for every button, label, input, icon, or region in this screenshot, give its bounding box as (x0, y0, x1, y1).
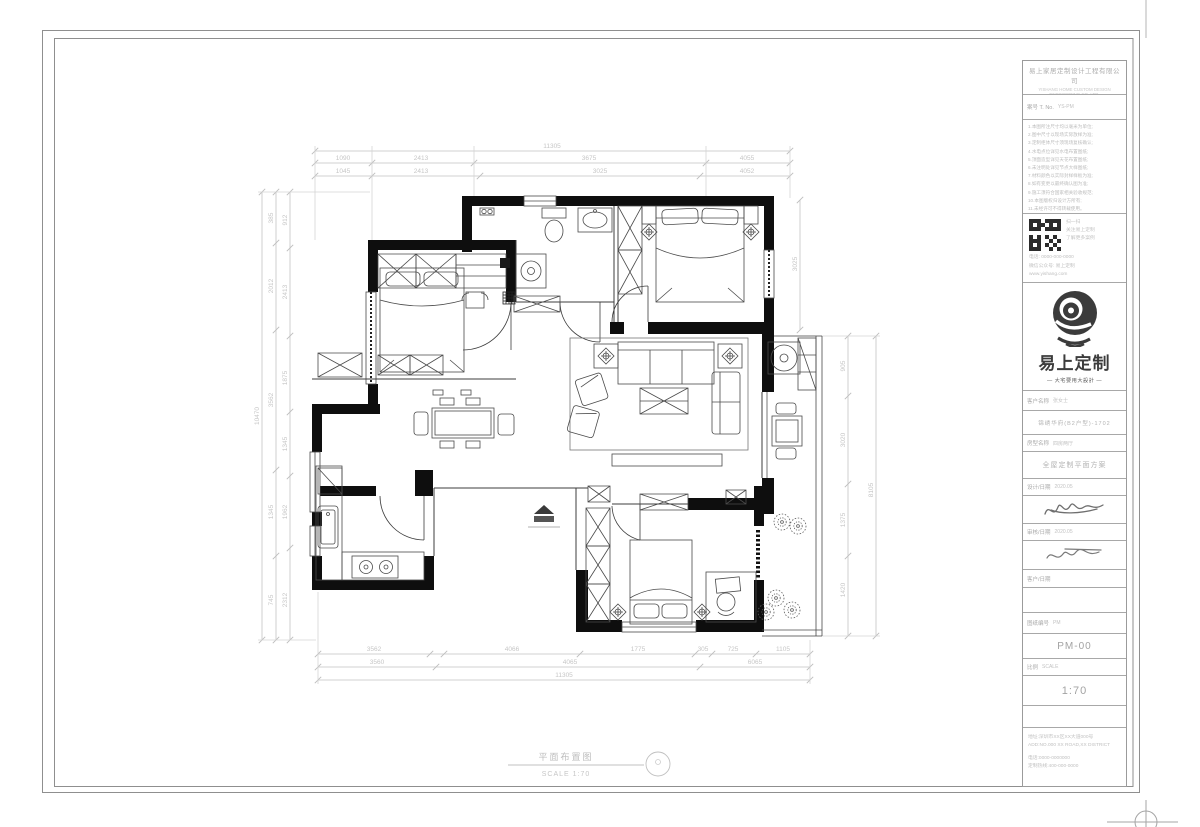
note-line: 11.未经许可不得转载使用。 (1028, 205, 1121, 213)
dim-label: 11305 (543, 143, 561, 150)
type-row: 房型名称 四房两厅 (1023, 435, 1126, 452)
furniture-layer (316, 206, 816, 624)
drawing-name-row: 全屋定制平面方案 (1023, 452, 1126, 479)
dim-label: 912 (282, 214, 289, 225)
title-block: 易上家居定制设计工程有限公司 YISHANG HOME CUSTOM DESIG… (1022, 60, 1127, 787)
dim-label: 8105 (868, 482, 875, 497)
dimension-lines (258, 146, 880, 684)
sheet-frame (43, 0, 1179, 827)
footer-phone: 电话:0000-0000000 (1028, 755, 1121, 763)
drawing-sheet: 11305 1090 2413 3675 4055 1045 2413 3025… (0, 0, 1200, 827)
scale-value: 1:70 (1062, 685, 1087, 697)
dim-label: 2413 (282, 284, 289, 299)
dim-label: 4052 (740, 168, 755, 175)
designer-label: 设计/日期 (1027, 483, 1051, 491)
drawing-title: 平面布置图 (538, 751, 593, 762)
auditor-label: 审核/日期 (1027, 528, 1051, 536)
dim-label: 305 (698, 646, 709, 653)
brand-logo-name: 易上定制 (1039, 349, 1111, 374)
drawing-title-block: 平面布置图 SCALE 1:70 (508, 751, 670, 778)
brand-logo-icon (1042, 289, 1108, 347)
drawing-name: 全屋定制平面方案 (1043, 460, 1107, 470)
footer-address-en: ADD:NO.000 XX ROAD,XX DISTRICT (1028, 742, 1121, 750)
note-line: 1.本图所注尺寸均以毫米为单位; (1028, 123, 1121, 131)
qr-caption-line: 了解更多案例 (1066, 235, 1095, 243)
dim-label: 3562 (367, 646, 382, 653)
dim-label: 1345 (282, 436, 289, 451)
drawing-no-value: PM-00 (1057, 641, 1091, 652)
dim-label: 2012 (268, 278, 275, 293)
qr-contact-line: www.yishang.com (1029, 271, 1120, 280)
case-number-row: 案号 T. No. YS-PM (1023, 95, 1126, 120)
dim-label: 1875 (282, 370, 289, 385)
dim-label: 745 (268, 594, 275, 605)
floor-plan-svg: 11305 1090 2413 3675 4055 1045 2413 3025… (0, 0, 1200, 827)
dim-label: 1775 (631, 646, 646, 653)
dim-label: 385 (268, 212, 275, 223)
case-number-label: 案号 T. No. (1027, 103, 1054, 111)
qr-section: 扫一扫 关注易上定制 了解更多案例 电话: 0000-000-0000 微信公众… (1023, 214, 1126, 283)
project-name-row: 锦绣华府(B2户型)-1702 (1023, 411, 1126, 435)
dim-label: 725 (728, 646, 739, 653)
company-footer: 地址:深圳市XX区XX大道000号 ADD:NO.000 XX ROAD,XX … (1023, 728, 1126, 788)
dim-label: 1105 (776, 646, 790, 653)
note-line: 2.图中尺寸以现场实际放样为准; (1028, 131, 1121, 139)
qr-caption-line: 扫一扫 (1066, 219, 1095, 227)
note-line: 8.如有变更以最终确认图为准; (1028, 180, 1121, 188)
client-value: 张女士 (1053, 397, 1068, 404)
type-value: 四房两厅 (1053, 440, 1073, 447)
qr-caption-line: 关注易上定制 (1066, 227, 1095, 235)
note-line: 3.定制柜体尺寸须现场复核确认; (1028, 139, 1121, 147)
dim-label: 3020 (840, 432, 847, 447)
entry-arrow (528, 505, 560, 527)
designer-signature-row (1023, 496, 1126, 524)
designer-row: 设计/日期 2020.05 (1023, 479, 1126, 496)
dim-label: 2413 (414, 168, 429, 175)
dim-label: 4065 (563, 659, 578, 666)
dim-label: 3025 (593, 168, 608, 175)
spacer-row-2 (1023, 706, 1126, 728)
dim-label: 11305 (555, 672, 573, 679)
footer-address: 地址:深圳市XX区XX大道000号 (1028, 734, 1121, 742)
scale-value-row: 1:70 (1023, 676, 1126, 706)
dim-label: 10470 (254, 407, 261, 425)
qr-code (1029, 219, 1061, 251)
company-name: 易上家居定制设计工程有限公司 (1027, 65, 1122, 85)
note-line: 7.材料颜色以实际封样样板为准; (1028, 172, 1121, 180)
dim-label: 6065 (748, 659, 763, 666)
type-label: 房型名称 (1027, 439, 1049, 447)
spacer-row (1023, 588, 1126, 613)
dim-label: 1345 (268, 504, 275, 519)
dim-label: 1962 (282, 504, 289, 519)
note-line: 6.未注明处详见节点大样图纸; (1028, 164, 1121, 172)
dim-label: 2312 (282, 592, 289, 607)
dim-label: 905 (840, 360, 847, 371)
case-number-value: YS-PM (1058, 104, 1074, 110)
note-line: 10.本图版权归设计方所有; (1028, 197, 1121, 205)
drawing-no-hint: PM (1053, 620, 1061, 626)
scale-label: 比例 (1027, 663, 1038, 671)
auditor-date: 2020.05 (1055, 529, 1073, 535)
dim-label: 3675 (582, 155, 597, 162)
company-name-en: YISHANG HOME CUSTOM DESIGN ENGINEERING C… (1027, 87, 1122, 95)
confirm-row: 客户/日期 (1023, 570, 1126, 588)
note-line: 5.顶面造型详见天花布置图纸; (1028, 156, 1121, 164)
dim-label: 3560 (370, 659, 385, 666)
designer-date: 2020.05 (1055, 484, 1073, 490)
dim-label: 4066 (505, 646, 520, 653)
scale-hint: SCALE (1042, 664, 1058, 670)
dim-label: 1090 (336, 155, 351, 162)
note-line: 4.水电点位详见水电布置图纸; (1028, 148, 1121, 156)
footer-hotline: 定制热线:400-000-0000 (1028, 763, 1121, 771)
qr-caption: 扫一扫 关注易上定制 了解更多案例 (1066, 219, 1095, 251)
dim-label: 4055 (740, 155, 755, 162)
partition-layer (312, 206, 762, 570)
brand-logo-section: 易上定制 — 大宅要用大設計 — (1023, 283, 1126, 391)
dim-label: 1375 (840, 512, 847, 527)
drawing-no-label: 图纸编号 (1027, 619, 1049, 627)
drawing-no-row: 图纸编号 PM (1023, 613, 1126, 634)
design-notes: 1.本图所注尺寸均以毫米为单位; 2.图中尺寸以现场实际放样为准; 3.定制柜体… (1023, 120, 1126, 214)
scale-row: 比例 SCALE (1023, 659, 1126, 676)
client-row: 客户名称 张女士 (1023, 391, 1126, 411)
walls-layer (312, 196, 774, 632)
qr-contact-line: 微信公众号: 易上定制 (1029, 263, 1120, 272)
brand-logo-tagline: — 大宅要用大設計 — (1047, 377, 1102, 384)
auditor-signature (1039, 543, 1111, 567)
qr-contact-line: 电话: 0000-000-0000 (1029, 254, 1120, 263)
qr-contact: 电话: 0000-000-0000 微信公众号: 易上定制 www.yishan… (1023, 251, 1126, 283)
designer-signature (1039, 498, 1111, 522)
client-label: 客户名称 (1027, 397, 1049, 405)
auditor-signature-row (1023, 541, 1126, 570)
company-header: 易上家居定制设计工程有限公司 YISHANG HOME CUSTOM DESIG… (1023, 61, 1126, 95)
dim-label: 1420 (840, 582, 847, 597)
project-name: 锦绣华府(B2户型)-1702 (1038, 419, 1110, 427)
confirm-label: 客户/日期 (1027, 575, 1051, 583)
dim-label: 1045 (336, 168, 351, 175)
dim-label: 2413 (414, 155, 429, 162)
dim-label: 3025 (792, 256, 799, 271)
note-line: 9.施工须符合国家相关验收规范; (1028, 189, 1121, 197)
dim-label: 3562 (268, 392, 275, 407)
drawing-no-value-row: PM-00 (1023, 634, 1126, 659)
drawing-scale-label: SCALE 1:70 (542, 771, 591, 778)
auditor-row: 审核/日期 2020.05 (1023, 524, 1126, 541)
